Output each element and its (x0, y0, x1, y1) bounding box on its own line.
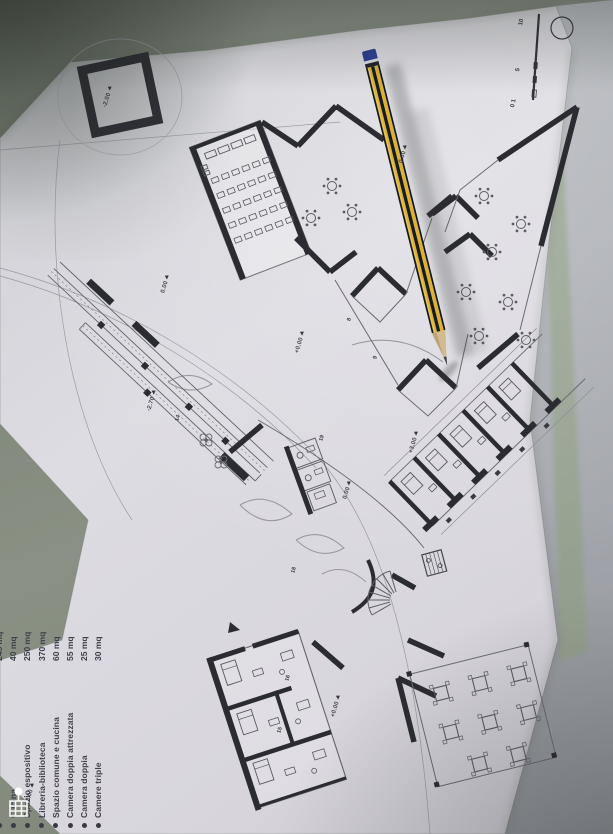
legend-item: Camera doppia25 mq (77, 602, 91, 834)
legend-item: Spazio comune e cucina60 mq (49, 602, 63, 834)
elevation-label: +0.00 (330, 695, 342, 718)
photo-of-architectural-plan: -2.00 0.00 -2.70 +0.00 0.00 +3.00 0.00 +… (0, 0, 613, 834)
elevation-label: +0.00 (294, 331, 306, 354)
room-number: 16 (284, 674, 292, 682)
room-number: 15 (276, 726, 284, 734)
legend-bullet-icon (25, 823, 30, 828)
elevation-marker-icon (165, 275, 169, 279)
legend-bullet-icon (0, 823, 2, 828)
legend-bullet-icon (53, 823, 58, 828)
room-number: 8 (346, 317, 353, 322)
scale-label: 0 1 (510, 99, 517, 108)
elevation-label: +3.00 (408, 431, 420, 454)
elevation-marker-icon (108, 87, 112, 91)
legend-bullet-icon (11, 823, 16, 828)
legend-bullet-icon (39, 823, 44, 828)
room-number: 19 (318, 434, 326, 442)
elevation-label: -2.00 (102, 86, 114, 108)
room-number: 14 (174, 414, 182, 422)
legend-bullet-icon (96, 823, 101, 828)
elevation-marker-icon (152, 391, 156, 395)
scale-label: 10 (518, 18, 525, 26)
room-number: 9 (372, 355, 379, 360)
legend-item: Libreria-biblioteca370 mq (35, 602, 49, 834)
elevation-label: 0.00 (160, 275, 171, 294)
elevation-label: 0.00 (342, 481, 353, 500)
location-pin-icon[interactable] (6, 786, 32, 820)
scale-label: 5 (515, 68, 522, 72)
elevation-marker-icon (336, 695, 340, 699)
elevation-marker-icon (300, 331, 304, 335)
room-number: 18 (290, 566, 298, 574)
legend-item: Camera doppia attrezzata55 mq (63, 602, 77, 834)
elevation-marker-icon (414, 431, 418, 435)
elevation-marker-icon (347, 481, 351, 485)
elevation-marker-icon (403, 145, 407, 149)
legend-bullet-icon (68, 823, 73, 828)
elevation-label: 0.00 (398, 145, 409, 164)
elevation-label: -2.70 (146, 390, 158, 412)
legend-item: Camere triple30 mq (91, 602, 105, 834)
legend-bullet-icon (82, 823, 87, 828)
